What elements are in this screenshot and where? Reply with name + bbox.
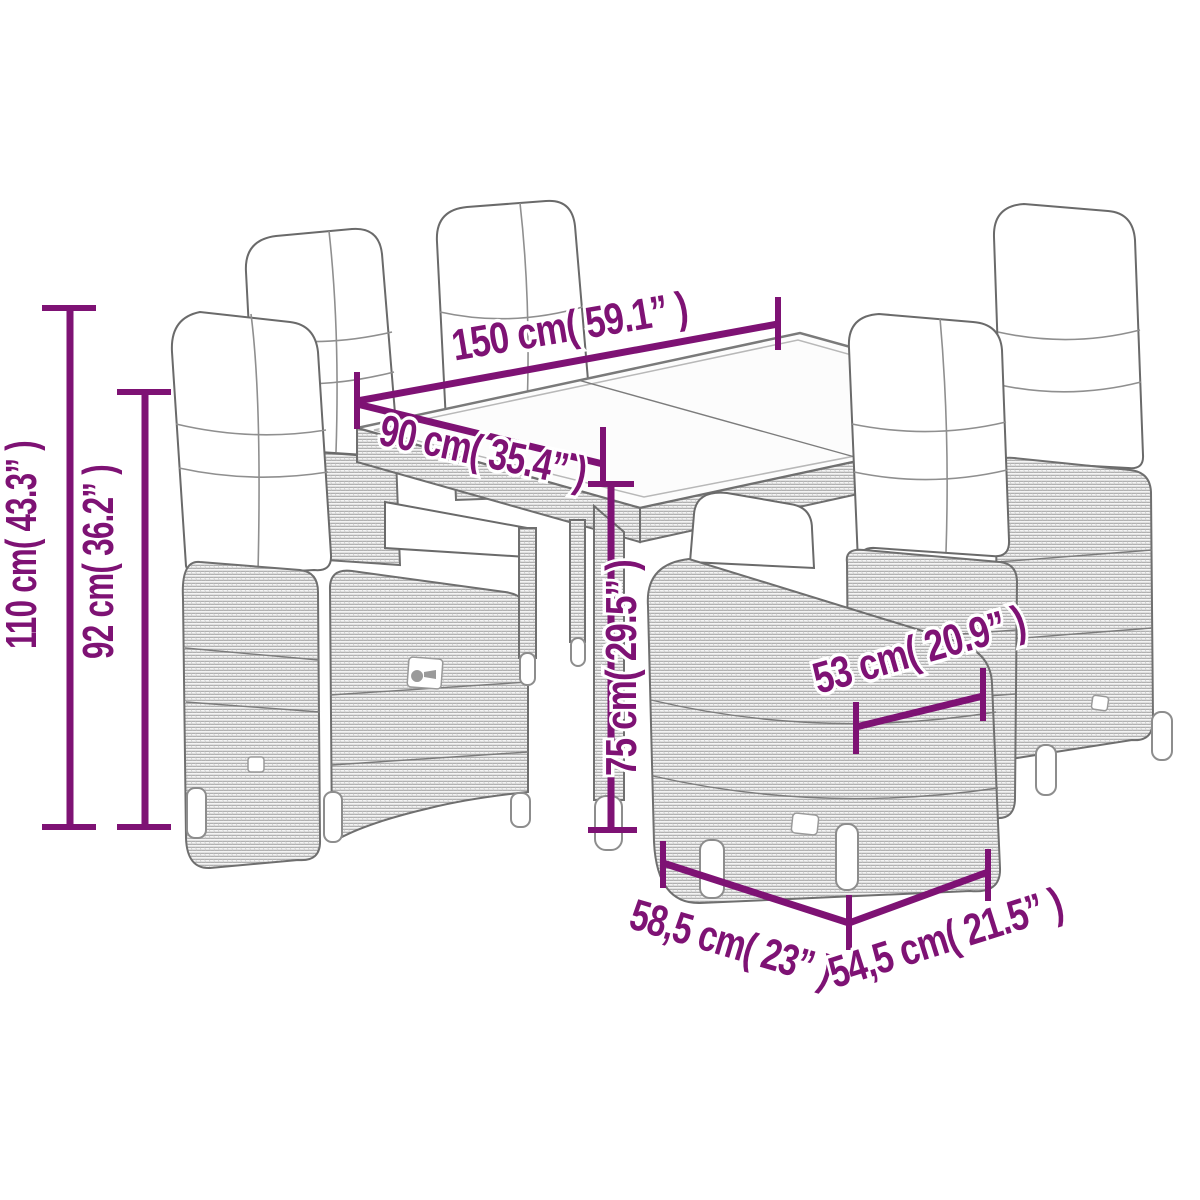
product-dimension-diagram: 150 cm( 59.1” ) 90 cm( 35.4” ) 110 cm( 4…	[0, 0, 1200, 1200]
chair-foot	[187, 788, 206, 838]
chair-front-left	[172, 312, 331, 868]
dimension-label: 92 cm( 36.2” )	[74, 465, 123, 659]
chair-leg-under-table	[570, 520, 585, 642]
chair-foot	[1036, 745, 1056, 795]
chair-foot	[836, 824, 858, 890]
leg-foot	[571, 638, 585, 666]
chair-back-cushion	[172, 312, 331, 576]
recline-lever-plaque	[791, 813, 819, 836]
chair-far-right	[994, 204, 1172, 795]
chair-foot	[511, 793, 530, 827]
brand-plaque	[248, 757, 264, 772]
dimension-label: 75 cm( 29.5” )	[597, 560, 646, 776]
chair-foot	[324, 792, 342, 842]
chair-leg-under-table	[519, 528, 536, 658]
brand-plaque	[1091, 695, 1109, 711]
chair-seat-panel	[330, 571, 528, 840]
leg-foot	[520, 653, 535, 685]
chair-foot	[700, 840, 724, 898]
dimension-label: 110 cm( 43.3” )	[0, 441, 46, 649]
chair-back-cushion	[849, 314, 1009, 562]
chair-foot	[1152, 712, 1172, 760]
chair-seat-cushion	[385, 502, 527, 557]
dimension-backrest-height: 92 cm( 36.2” )	[74, 392, 171, 827]
furniture-diagram-canvas: 150 cm( 59.1” ) 90 cm( 35.4” ) 110 cm( 4…	[0, 0, 1200, 1200]
chair-back-cushion	[994, 204, 1143, 472]
